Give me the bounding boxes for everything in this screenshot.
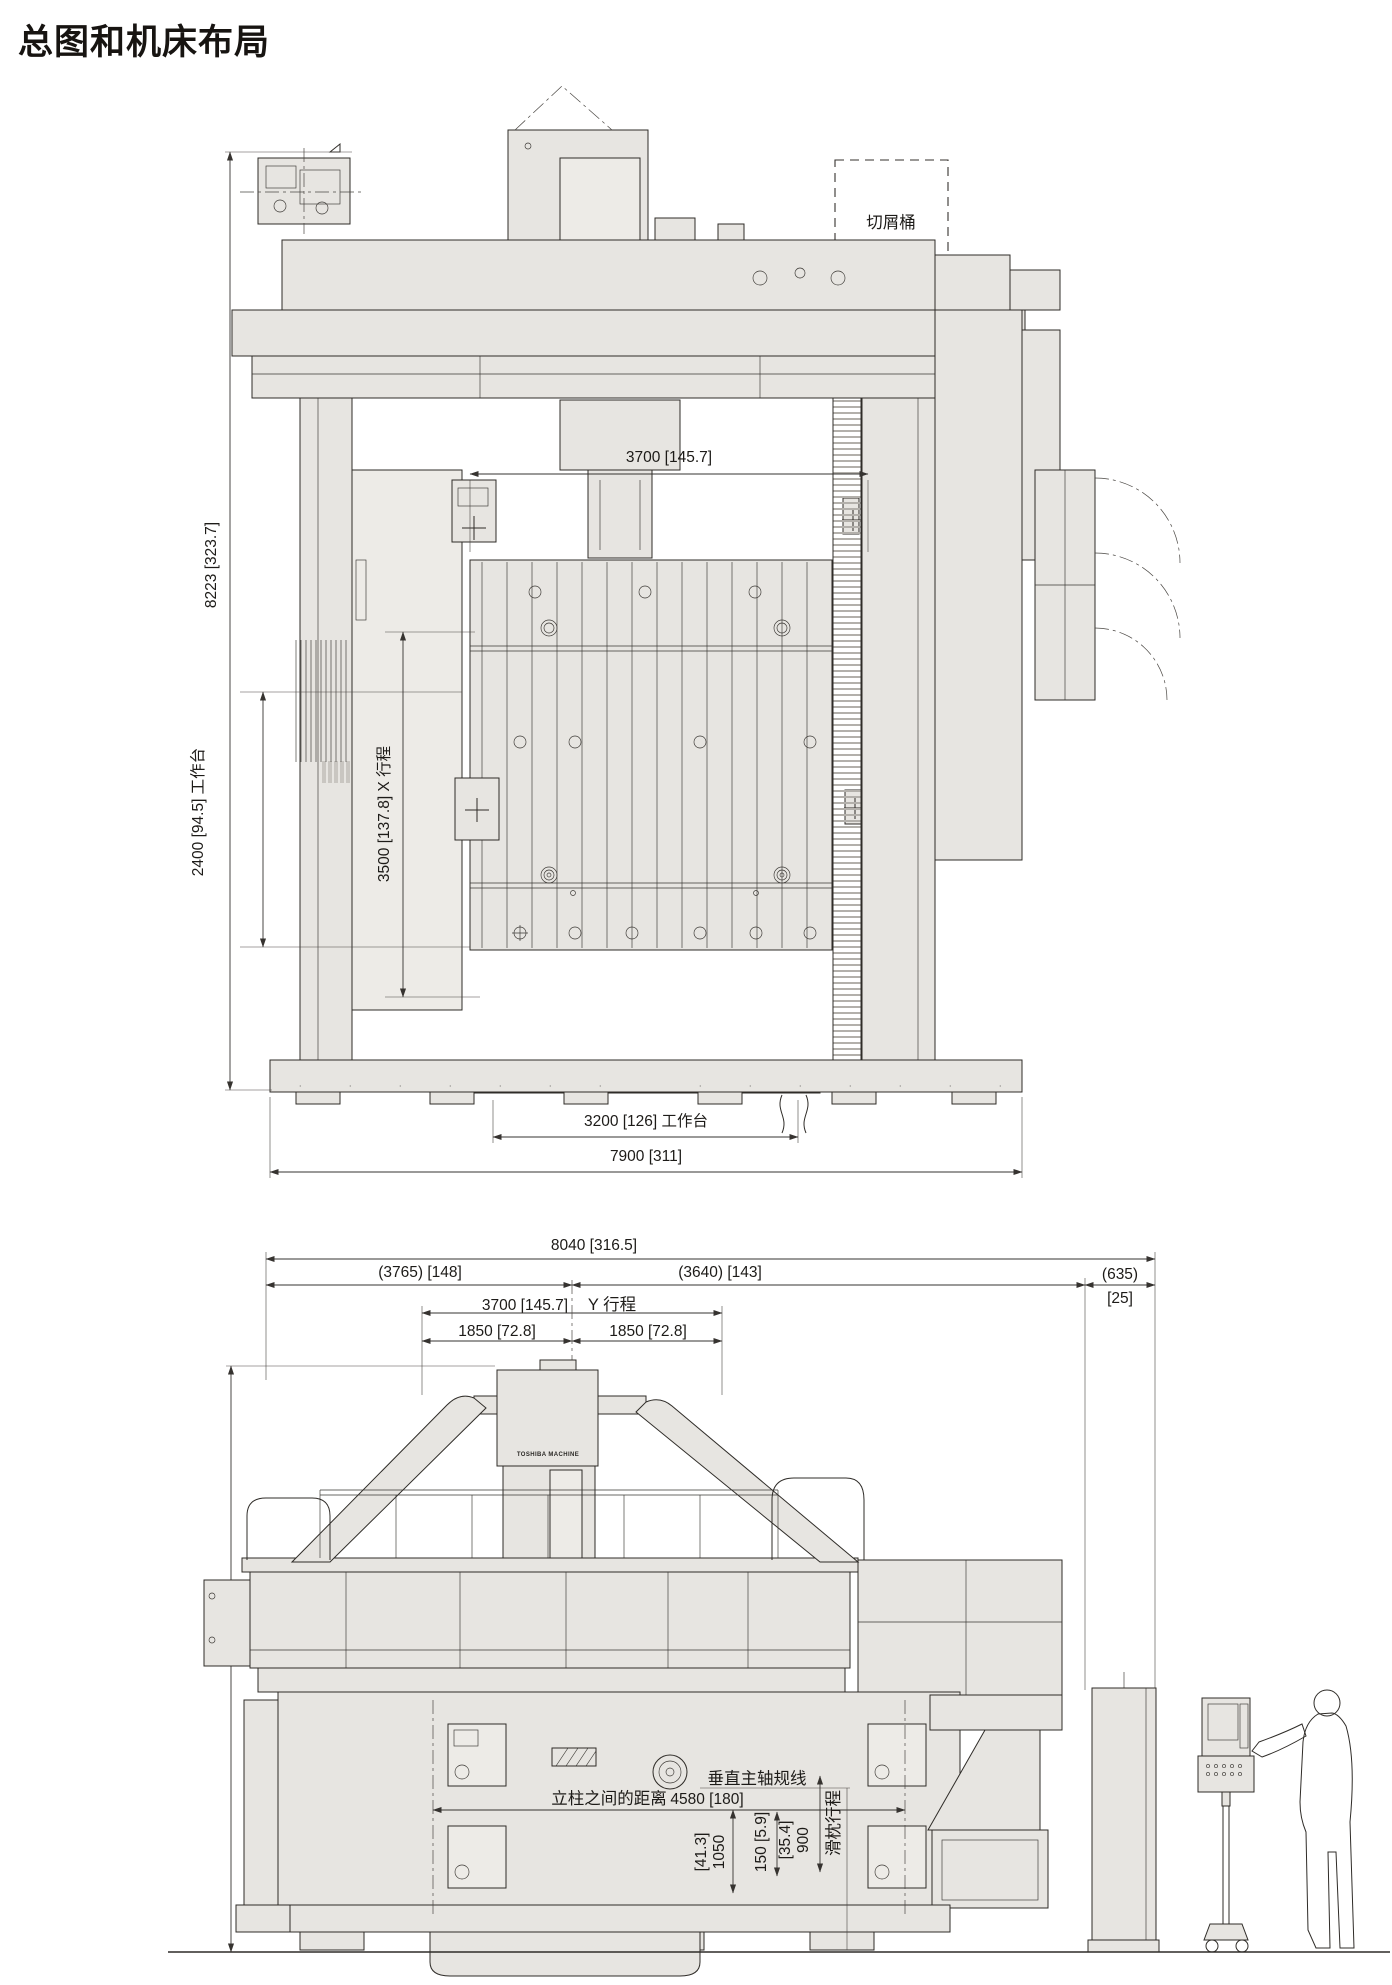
front-access-doors [1035, 470, 1180, 700]
dim-ram-mm: 900 [795, 1827, 812, 1853]
dim-clearance: 150 [5.9] [753, 1812, 770, 1872]
side-machine-body: TOSHIBA MACHINE [204, 1360, 1062, 1976]
front-right-column [862, 310, 1060, 1060]
dim-side-y-half-right: 1850 [72.8] [609, 1323, 687, 1340]
dim-side-cabinet-gap-in: [25] [1107, 1290, 1133, 1307]
operator-figure [1252, 1690, 1354, 1948]
label-ram-stroke: 滑枕行程 [824, 1790, 843, 1856]
dim-side-cabinet-gap-mm: (635) [1102, 1266, 1138, 1283]
dim-column-distance: 4580 [180] [670, 1791, 743, 1808]
front-ram-head [560, 400, 680, 558]
dim-front-overall-height: 8223 [323.7] [203, 522, 220, 608]
chip-bucket-label: 切屑桶 [866, 213, 916, 232]
brand-logo-text: TOSHIBA MACHINE [517, 1452, 579, 1458]
cnc-pendant [1198, 1698, 1254, 1952]
dim-front-spindle-span: 3700 [145.7] [626, 449, 712, 466]
dim-side-y-half-left: 1850 [72.8] [458, 1323, 536, 1340]
label-side-y-stroke: Y 行程 [588, 1295, 636, 1314]
front-center-tower [508, 86, 648, 242]
dim-front-x-stroke: 3500 [137.8] X 行程 [375, 746, 393, 882]
front-left-column [296, 398, 462, 1060]
dim-gauge-mm: 1050 [711, 1834, 728, 1869]
front-view: 切屑桶 [189, 86, 1180, 1178]
dim-front-table-width: 3200 [126] 工作台 [584, 1112, 708, 1130]
dim-front-table-depth: 2400 [94.5] 工作台 [189, 748, 207, 876]
dim-side-y-stroke: 3700 [145.7] [482, 1297, 568, 1314]
machine-layout-drawing: 切屑桶 [0, 0, 1392, 1985]
dim-side-front-segment: (3765) [148] [378, 1264, 462, 1281]
dim-gauge-inch: [41.3] [693, 1833, 710, 1872]
front-worktable [470, 560, 832, 950]
electrical-cabinet [1088, 1672, 1159, 1952]
dim-side-rear-segment: (3640) [143] [678, 1264, 762, 1281]
front-accessory-unit [240, 144, 364, 234]
dim-front-overall-width: 7900 [311] [610, 1148, 682, 1165]
label-column-distance: 立柱之间的距离 [551, 1789, 667, 1808]
dim-ram-inch: [35.4] [777, 1821, 794, 1860]
dim-side-overall-length: 8040 [316.5] [551, 1237, 637, 1254]
label-spindle-gauge-line: 垂直主轴规线 [708, 1769, 807, 1788]
side-view: 8040 [316.5] (3765) [148] (3640) [143] (… [168, 1237, 1390, 1976]
